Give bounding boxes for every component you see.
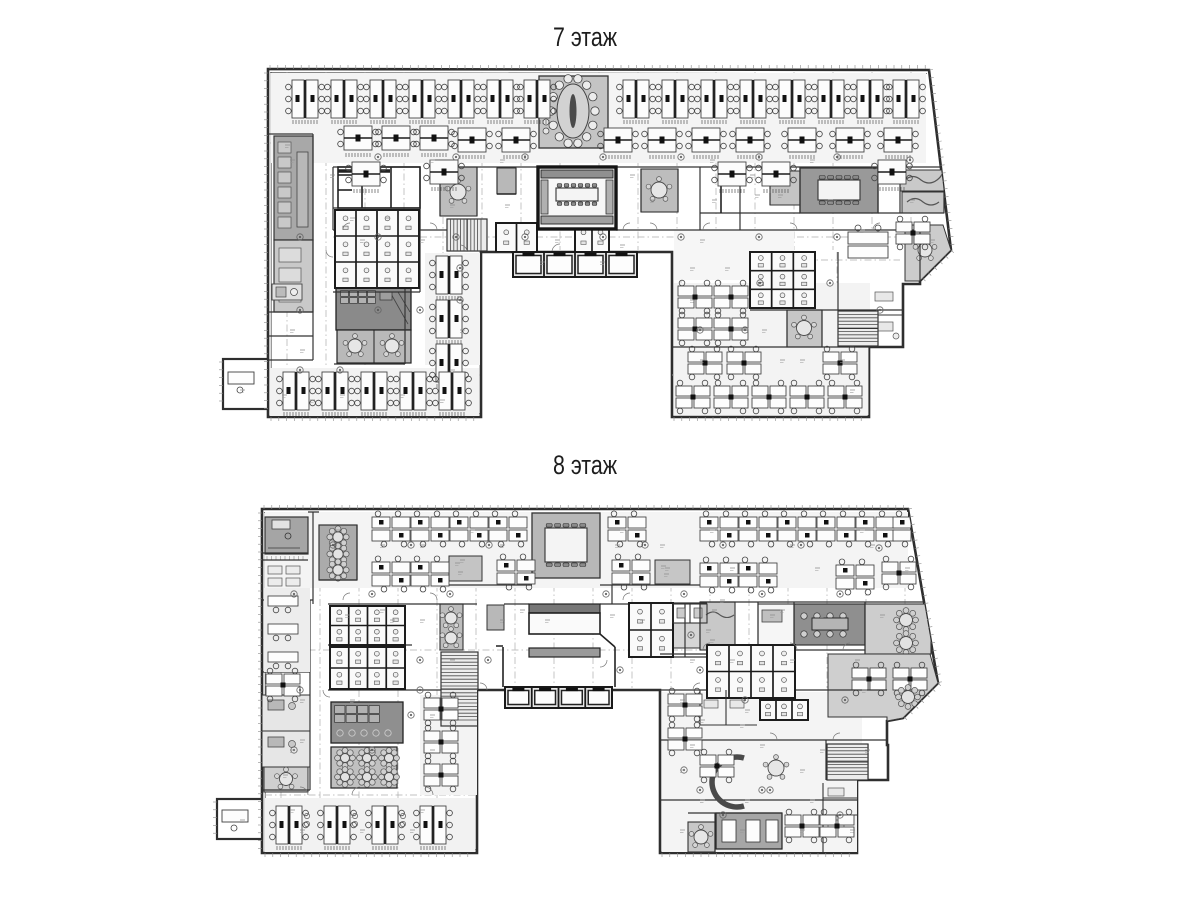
svg-text:7 этаж: 7 этаж — [553, 22, 617, 52]
svg-text:8 этаж: 8 этаж — [553, 450, 617, 480]
